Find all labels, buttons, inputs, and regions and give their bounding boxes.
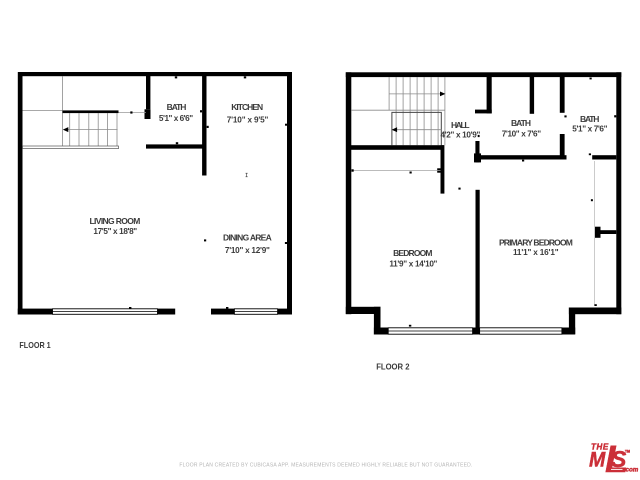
svg-text:DINING AREA: DINING AREA [223,233,272,243]
svg-text:4'2" x 10'9": 4'2" x 10'9" [440,131,480,140]
svg-text:BATH: BATH [167,102,187,112]
svg-text:LIVING ROOM: LIVING ROOM [90,216,141,226]
svg-text:7'10" x 7'6": 7'10" x 7'6" [502,130,542,139]
svg-text:PRIMARY BEDROOM: PRIMARY BEDROOM [499,238,573,248]
svg-text:17'5" x 18'8": 17'5" x 18'8" [93,227,137,236]
svg-text:7'10" x 12'9": 7'10" x 12'9" [225,246,270,255]
svg-text:.com: .com [624,467,639,474]
svg-text:11'9" x 14'10": 11'9" x 14'10" [389,260,437,269]
svg-text:KITCHEN: KITCHEN [231,102,263,112]
svg-text:FLOOR 2: FLOOR 2 [376,362,410,372]
svg-text:FLOOR 1: FLOOR 1 [19,340,51,350]
svg-text:FLOOR PLAN CREATED BY CUBICASA: FLOOR PLAN CREATED BY CUBICASA APP. MEAS… [179,463,472,469]
svg-text:M: M [589,449,606,472]
svg-text:HALL: HALL [451,120,470,130]
svg-text:TM: TM [625,450,630,454]
svg-text:BEDROOM: BEDROOM [393,248,432,258]
svg-text:BATH: BATH [580,114,599,124]
svg-text:11'1" x 16'1": 11'1" x 16'1" [513,248,559,257]
svg-text:5'1" x 6'6": 5'1" x 6'6" [159,114,193,123]
svg-text:7'10" x 9'5": 7'10" x 9'5" [227,116,269,125]
svg-text:BATH: BATH [511,118,531,128]
svg-text:5'1" x 7'6": 5'1" x 7'6" [572,125,607,134]
